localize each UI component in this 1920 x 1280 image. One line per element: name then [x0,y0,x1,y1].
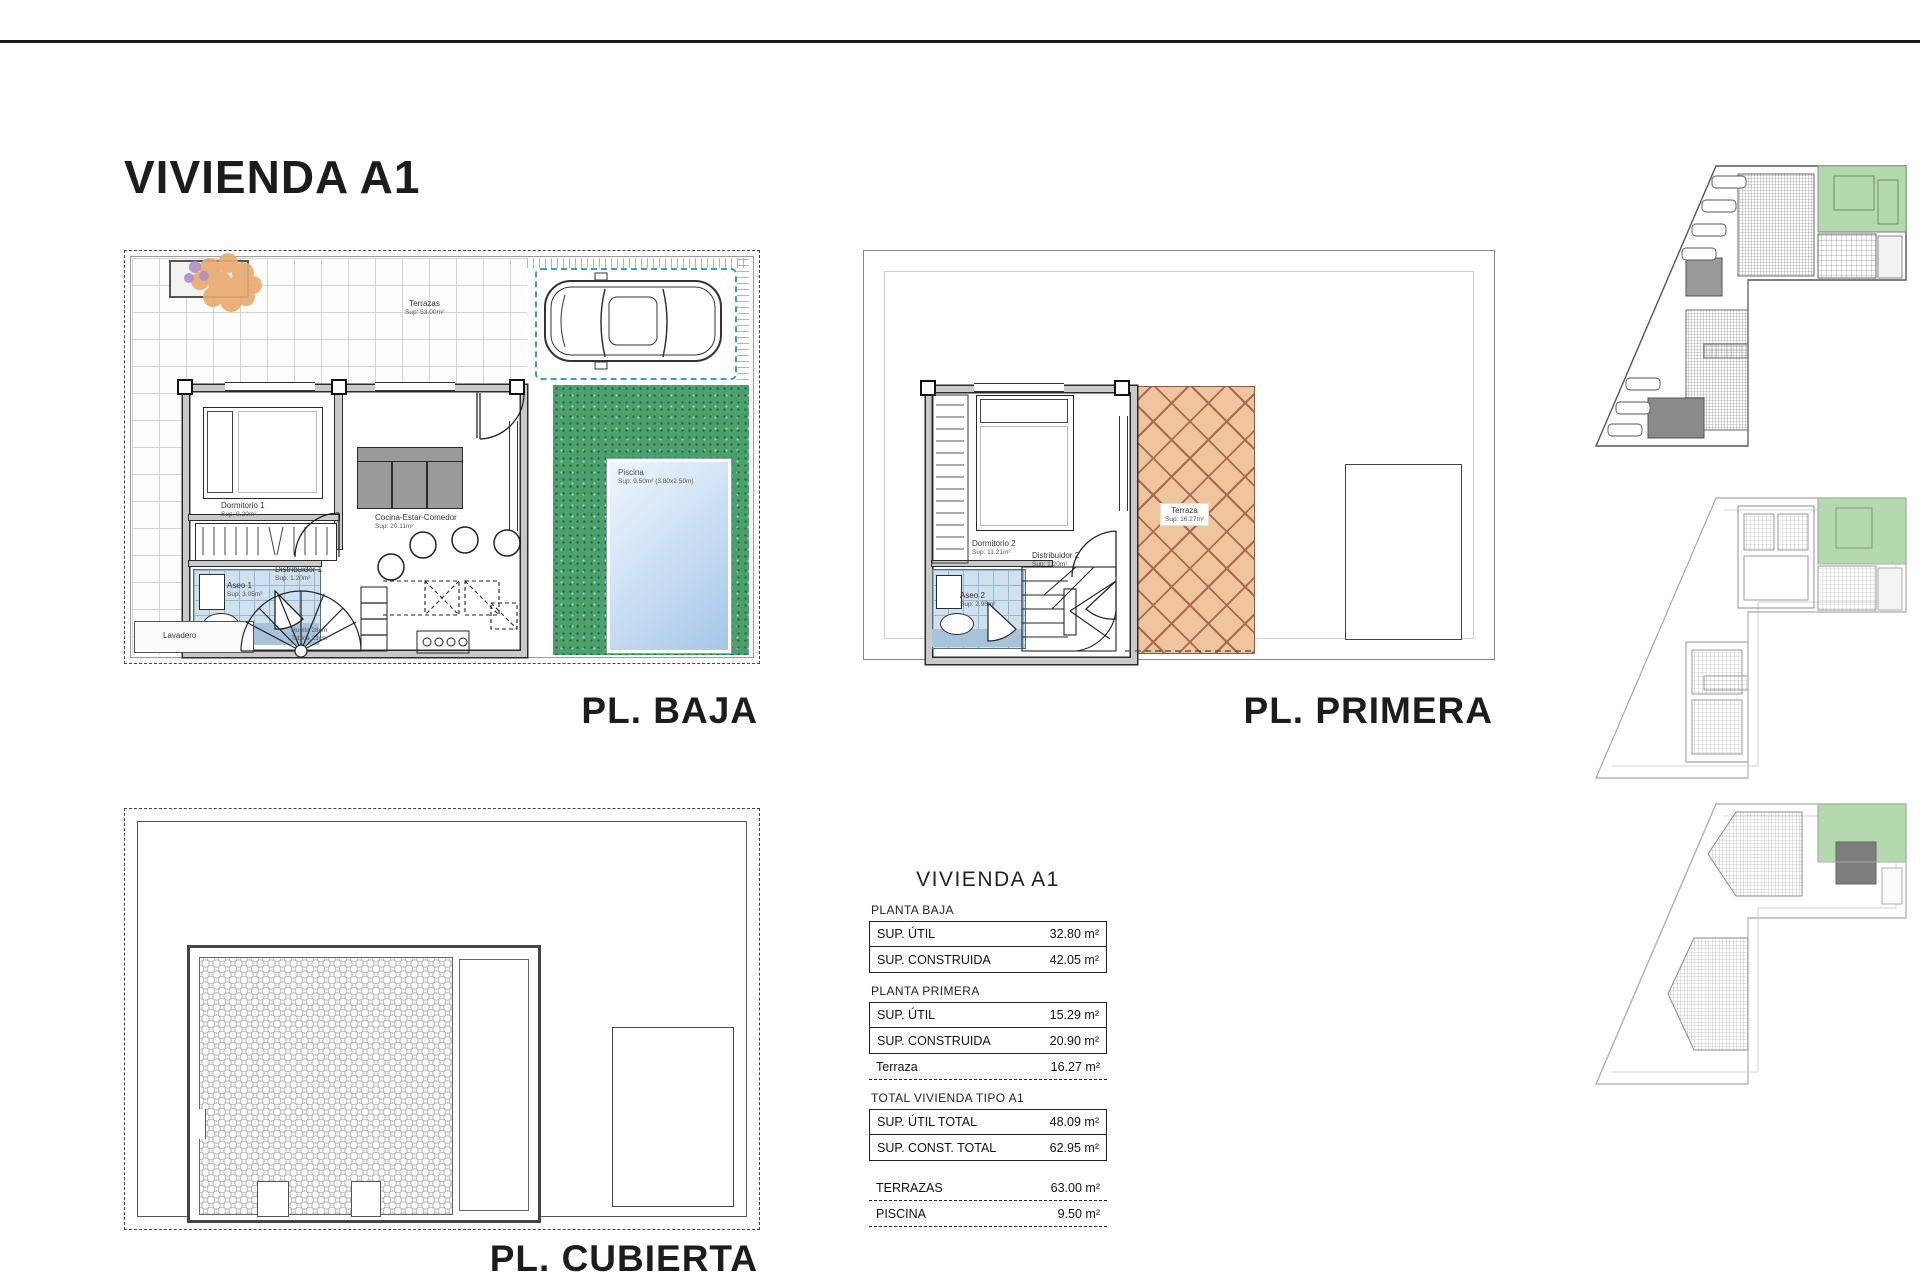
table-row: SUP. CONSTRUIDA20.90 m² [869,1027,1107,1054]
room-label-piscina: Piscina Sup: 9.50m² (3.80x2.50m) [618,468,694,485]
window [509,421,518,531]
toilet-icon [940,613,974,635]
siteplan-keyplan-first [1586,492,1920,788]
section-heading-planta-baja: PLANTA BAJA [871,903,1107,917]
room-label-terraza: Terrazas Sup: 53.00m² [405,299,444,316]
sink-icon [936,575,962,609]
stair-note: Huella 28cm Tabica 21cm [291,627,328,643]
swimming-pool: Piscina Sup: 9.50m² (3.80x2.50m) [607,459,731,653]
room-label-distribuidor1: Distribuidor 1 Sup: 1.20m² [275,565,322,582]
laundry-room: Lavadero [134,621,254,653]
room-label-dormitorio1: Dormitorio 1 Sup: 9.20m² [221,501,265,518]
room-label-distribuidor2: Distribuidor 2 Sup: 1.20m² [1032,551,1079,568]
parking-hatch-top [527,258,749,268]
table-row: SUP. ÚTIL TOTAL48.09 m² [869,1109,1107,1136]
room-label-dormitorio2: Dormitorio 2 Sup: 11.21m² [972,539,1016,556]
window [1119,416,1128,511]
bed-icon [976,395,1074,531]
roof-plan-cubierta [124,808,760,1230]
column-marker [331,379,347,395]
plan-label-baja: PL. BAJA [480,690,758,732]
pillow [980,399,1068,423]
table-row: SUP. CONST. TOTAL62.95 m² [869,1134,1107,1161]
room-label-aseo2: Aseo 2 Sup: 2.95m² [960,591,995,608]
pillow [207,411,233,493]
window [225,382,315,391]
table-row: PISCINA9.50 m² [869,1201,1107,1227]
roof-step [191,1109,206,1139]
plan-label-primera: PL. PRIMERA [1150,690,1493,732]
room-label-cocina: Cocina-Estar-Comedor Sup: 20.11m² [375,513,457,530]
bed-icon [203,407,323,499]
duvet [980,426,1068,526]
floor-plan-baja: Piscina Sup: 9.50m² (3.80x2.50m) [124,250,760,664]
siteplan-keyplan-ground [1586,160,1920,456]
plan-label-cubierta: PL. CUBIERTA [420,1238,758,1280]
section-heading-planta-primera: PLANTA PRIMERA [871,984,1107,998]
table-row: SUP. ÚTIL32.80 m² [869,921,1107,948]
column-marker [1114,380,1130,396]
room-label-aseo1: Aseo 1 Sup: 3.05m² [227,581,262,598]
table-row: TERRAZAS63.00 m² [869,1175,1107,1201]
parking-bay-outline [535,268,737,380]
pool-below-outline [612,1027,734,1207]
window [974,383,1064,392]
sofa-icon [357,461,392,509]
planter [169,260,249,298]
room-label-lavadero: Lavadero [163,631,196,641]
column-marker [920,380,936,396]
roof-notch [351,1181,381,1217]
table-row: Terraza16.27 m² [869,1054,1107,1080]
roof-tile-hatch [199,957,453,1215]
sink-icon [199,574,225,610]
pool-below-outline [1345,464,1462,640]
sofa-icon [392,461,427,509]
sofa-icon [427,461,463,509]
drawing-sheet: VIVIENDA A1 Piscina Sup: 9.50m² (3.80x2.… [0,0,1920,1280]
roof-flat-strip [459,959,529,1211]
wardrobe-icon [195,523,337,561]
table-row: SUP. CONSTRUIDA42.05 m² [869,946,1107,973]
areas-table: VIVIENDA A1 PLANTA BAJA SUP. ÚTIL32.80 m… [869,868,1107,1227]
side-paving [132,258,184,654]
window [375,382,455,391]
siteplan-keyplan-roof [1586,798,1920,1094]
roof-notch [257,1181,289,1217]
parking-hatch-right [737,258,749,386]
table-row: SUP. ÚTIL15.29 m² [869,1002,1107,1029]
sheet-top-rule [0,40,1920,43]
column-marker [509,379,525,395]
room-label-terraza2: Terraza Sup: 16.27m² [1160,503,1209,526]
section-heading-total: TOTAL VIVIENDA TIPO A1 [871,1091,1107,1105]
column-marker [177,379,193,395]
duvet [238,411,317,493]
areas-table-title: VIVIENDA A1 [869,868,1107,892]
floor-plan-primera: Dormitorio 2 Sup: 11.21m² Aseo 2 Sup: 2.… [863,250,1495,660]
page-title: VIVIENDA A1 [124,150,420,204]
